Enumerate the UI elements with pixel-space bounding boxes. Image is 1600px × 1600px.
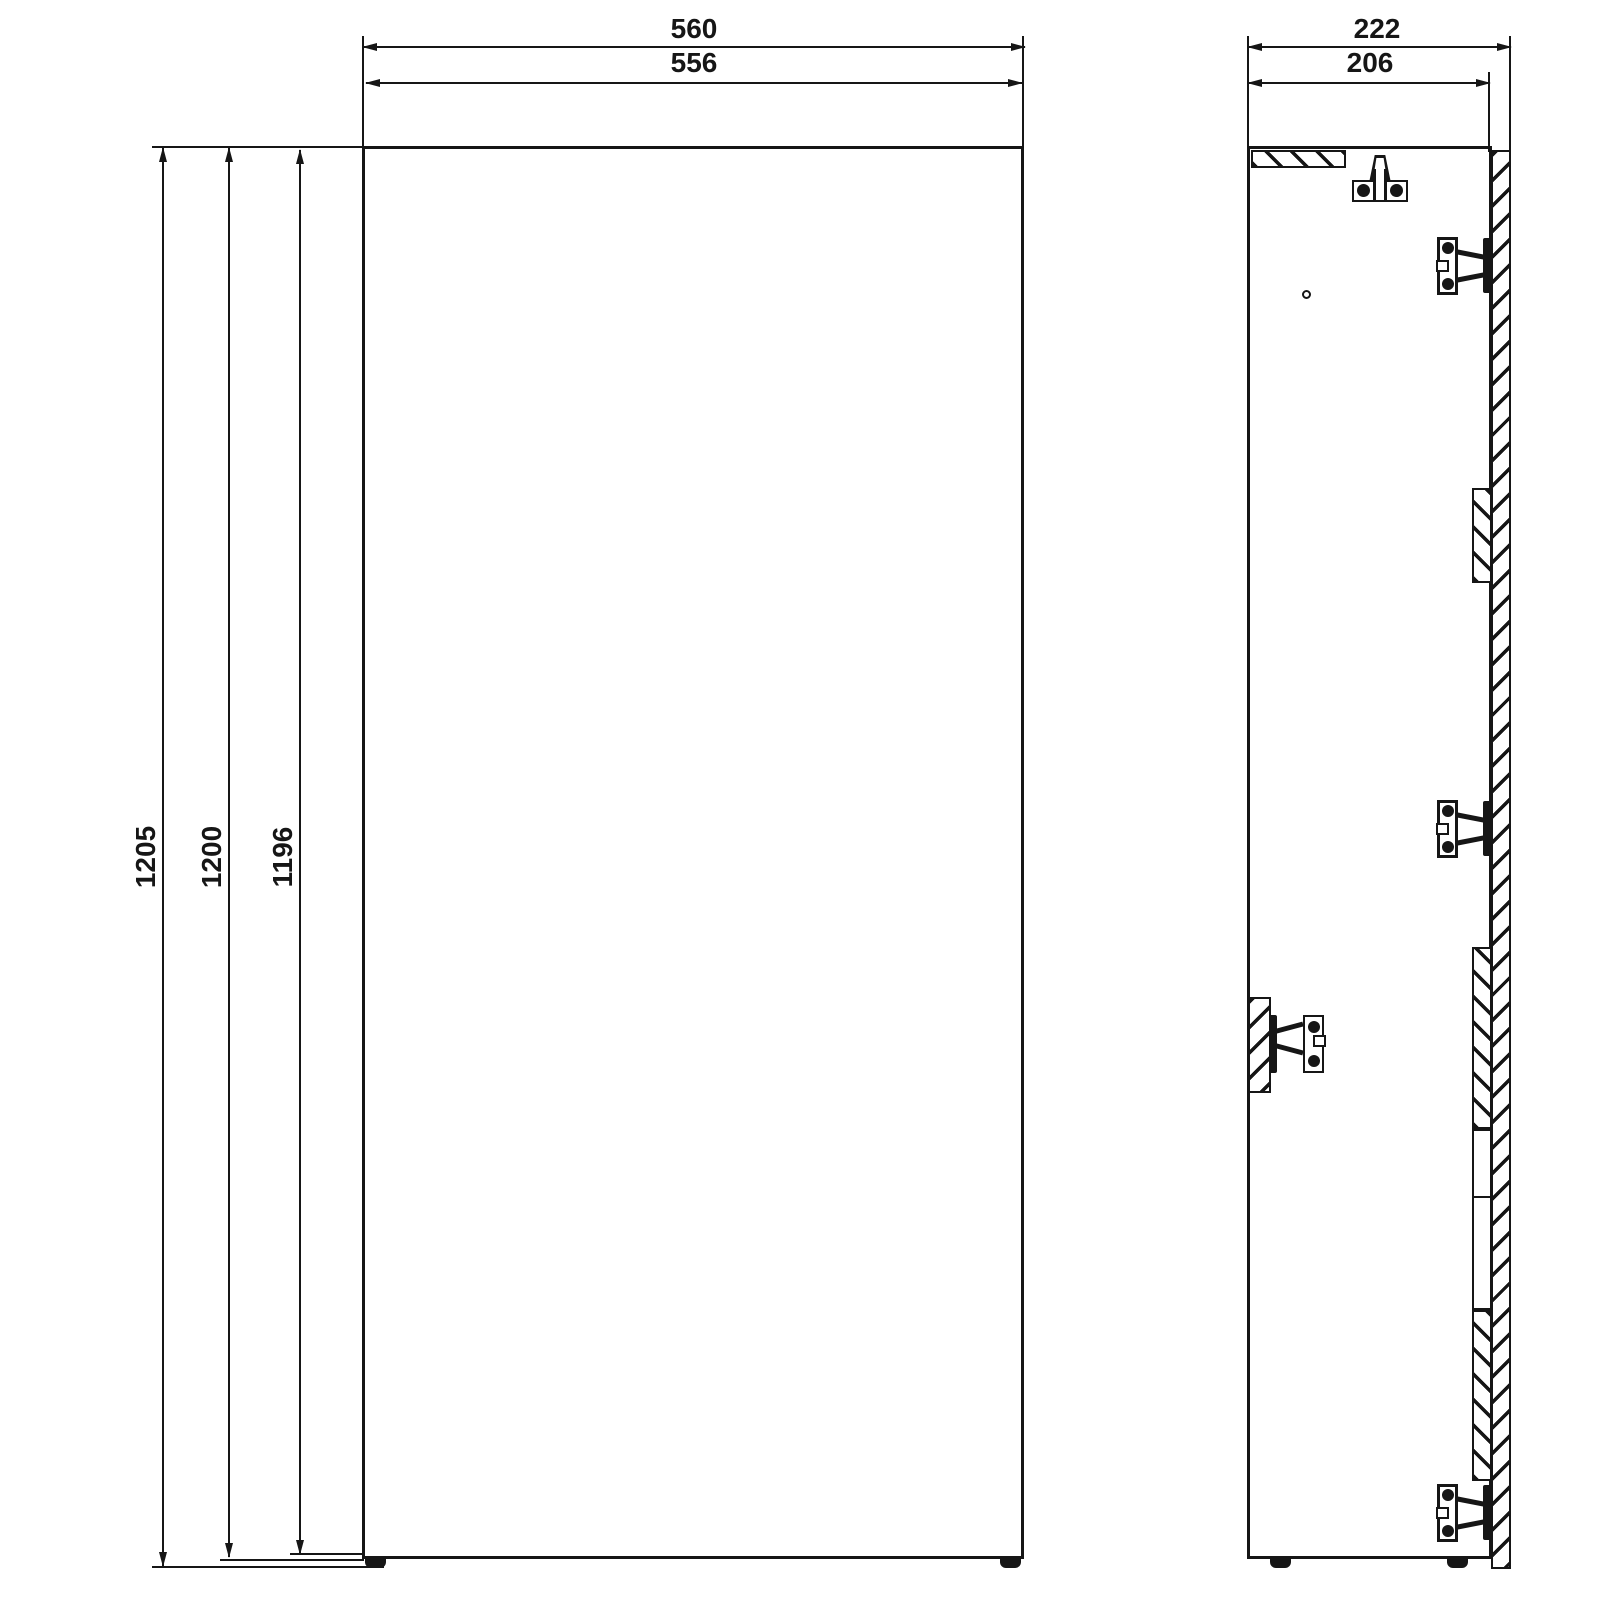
height-dimension-1205-label: 1205 bbox=[130, 826, 162, 888]
hinge-notch bbox=[1436, 823, 1449, 835]
depth-dimension-222-label: 222 bbox=[1354, 13, 1401, 45]
extension-line-depth-right-206 bbox=[1488, 72, 1490, 152]
extension-line-height-bottom-1196 bbox=[290, 1553, 364, 1555]
height-dimension-1200-line bbox=[228, 148, 230, 1557]
extension-line-height-bottom-1200 bbox=[220, 1559, 364, 1561]
hinge-screw-top-icon bbox=[1442, 805, 1454, 817]
hanger-screw-left-icon bbox=[1357, 184, 1370, 197]
hinge-notch bbox=[1436, 1507, 1449, 1519]
height-dimension-1200-label: 1200 bbox=[196, 826, 228, 888]
depth-dimension-206-line bbox=[1248, 82, 1490, 84]
side-foot-back bbox=[1270, 1557, 1291, 1568]
width-dimension-556-line bbox=[366, 82, 1022, 84]
extension-line-height-bottom-1205 bbox=[152, 1566, 384, 1568]
wall-bracket-plate bbox=[1248, 997, 1271, 1093]
door-inner-panel-mid bbox=[1472, 947, 1492, 1129]
width-dimension-560-label: 560 bbox=[671, 13, 718, 45]
wall-bracket-arm-upper bbox=[1274, 1022, 1303, 1034]
extension-line-depth-right-222 bbox=[1509, 36, 1511, 152]
door-inner-panel-upper bbox=[1472, 488, 1492, 583]
wall-bracket-screw-bottom-icon bbox=[1308, 1055, 1320, 1067]
hinge-middle bbox=[1437, 800, 1491, 858]
door-inner-panel-window-divider bbox=[1473, 1196, 1491, 1198]
mirror-door-section bbox=[1491, 150, 1511, 1569]
hinge-door-mount bbox=[1483, 1485, 1491, 1540]
wall-bracket-screw-top-icon bbox=[1308, 1021, 1320, 1033]
width-dimension-556-label: 556 bbox=[671, 47, 718, 79]
extension-line-width-left bbox=[362, 36, 364, 148]
front-foot-right bbox=[1000, 1557, 1021, 1568]
drill-hole-icon bbox=[1302, 290, 1311, 299]
hinge-screw-bottom-icon bbox=[1442, 841, 1454, 853]
height-dimension-1205-line bbox=[162, 148, 164, 1566]
hinge-top bbox=[1437, 237, 1491, 295]
extension-line-depth-left bbox=[1247, 36, 1249, 148]
depth-dimension-206-label: 206 bbox=[1347, 47, 1394, 79]
extension-line-height-top bbox=[152, 146, 365, 148]
wall-bracket-bottom bbox=[1248, 997, 1326, 1093]
hinge-bottom bbox=[1437, 1484, 1491, 1542]
wall-rail-section bbox=[1251, 150, 1346, 168]
technical-drawing: 560 556 1205 1200 1196 bbox=[0, 0, 1600, 1600]
hinge-screw-top-icon bbox=[1442, 1489, 1454, 1501]
hanger-bracket bbox=[1352, 155, 1408, 202]
hanger-center-slot bbox=[1373, 169, 1387, 200]
side-foot-front bbox=[1447, 1557, 1468, 1568]
hinge-door-mount bbox=[1483, 801, 1491, 856]
hinge-notch bbox=[1436, 260, 1449, 272]
extension-line-width-right bbox=[1022, 36, 1024, 148]
wall-bracket-arm-lower bbox=[1274, 1043, 1303, 1055]
height-dimension-1196-label: 1196 bbox=[267, 827, 299, 888]
door-inner-panel-window bbox=[1472, 1129, 1492, 1310]
hinge-screw-top-icon bbox=[1442, 242, 1454, 254]
hinge-screw-bottom-icon bbox=[1442, 278, 1454, 290]
wall-bracket-notch bbox=[1313, 1035, 1326, 1047]
height-dimension-1196-line bbox=[299, 150, 301, 1554]
front-cabinet-outline bbox=[362, 146, 1024, 1559]
hinge-screw-bottom-icon bbox=[1442, 1525, 1454, 1537]
hinge-door-mount bbox=[1483, 238, 1491, 293]
door-inner-panel-lower bbox=[1472, 1310, 1492, 1481]
hanger-screw-right-icon bbox=[1390, 184, 1403, 197]
